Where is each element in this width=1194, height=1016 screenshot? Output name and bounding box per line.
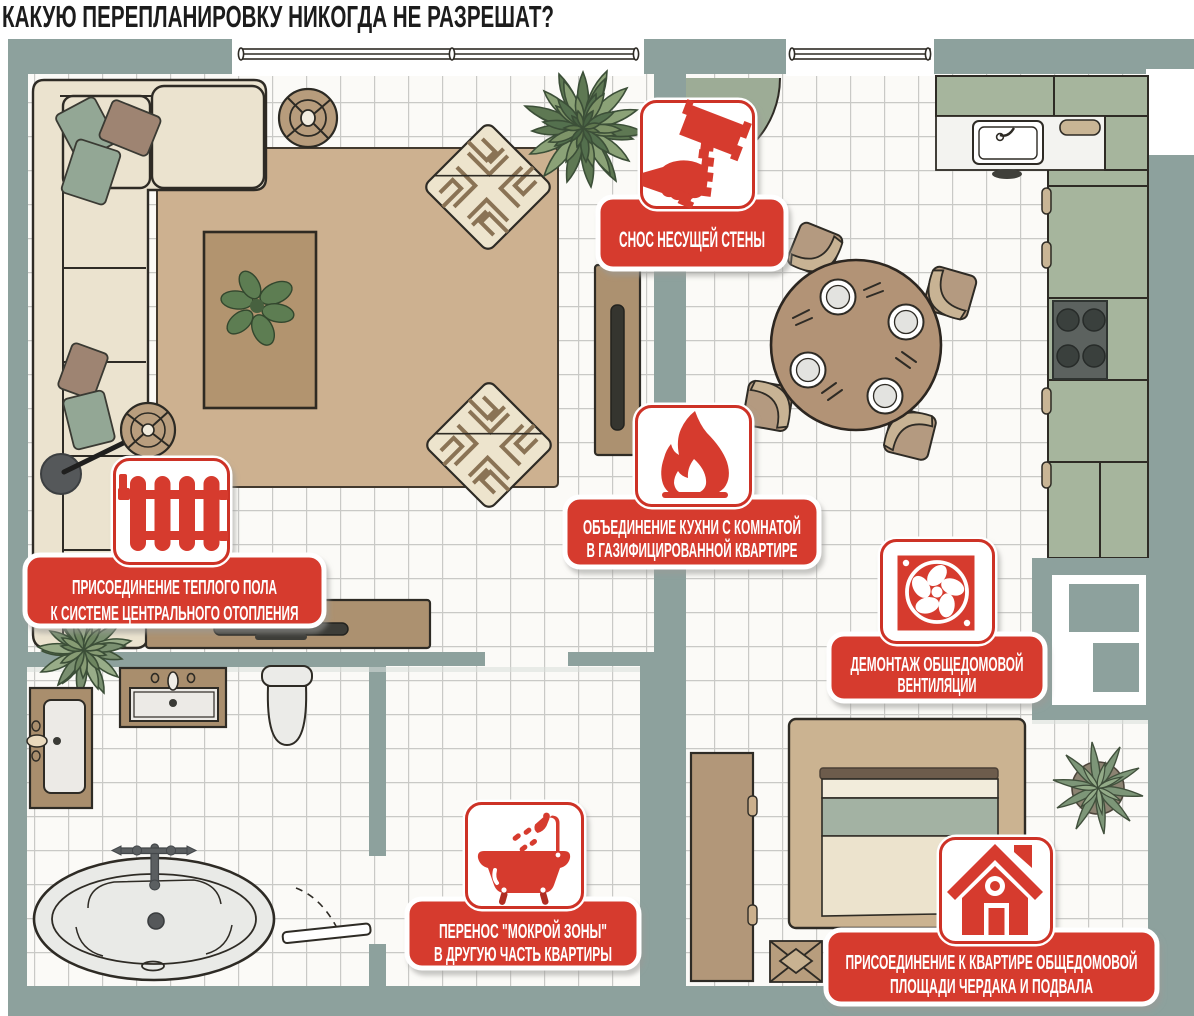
svg-text:ПЕРЕНОС "МОКРОЙ ЗОНЫ": ПЕРЕНОС "МОКРОЙ ЗОНЫ" (439, 919, 607, 943)
svg-text:В ГАЗИФИЦИРОВАННОЙ КВАРТИРЕ: В ГАЗИФИЦИРОВАННОЙ КВАРТИРЕ (587, 538, 798, 562)
svg-text:КАКУЮ ПЕРЕПЛАНИРОВКУ НИКОГДА Н: КАКУЮ ПЕРЕПЛАНИРОВКУ НИКОГДА НЕ РАЗРЕШАТ… (2, 0, 554, 34)
svg-text:К СИСТЕМЕ ЦЕНТРАЛЬНОГО ОТОПЛЕН: К СИСТЕМЕ ЦЕНТРАЛЬНОГО ОТОПЛЕНИЯ (51, 603, 299, 625)
svg-text:ПРИСОЕДИНЕНИЕ ТЕПЛОГО ПОЛА: ПРИСОЕДИНЕНИЕ ТЕПЛОГО ПОЛА (72, 577, 277, 599)
svg-text:ДЕМОНТАЖ ОБЩЕДОМОВОЙ: ДЕМОНТАЖ ОБЩЕДОМОВОЙ (851, 652, 1024, 676)
svg-text:В ДРУГУЮ ЧАСТЬ КВАРТИРЫ: В ДРУГУЮ ЧАСТЬ КВАРТИРЫ (434, 944, 612, 966)
svg-text:ВЕНТИЛЯЦИИ: ВЕНТИЛЯЦИИ (898, 675, 977, 697)
svg-text:ПЛОЩАДИ ЧЕРДАКА И ПОДВАЛА: ПЛОЩАДИ ЧЕРДАКА И ПОДВАЛА (890, 976, 1093, 998)
svg-text:СНОС НЕСУЩЕЙ СТЕНЫ: СНОС НЕСУЩЕЙ СТЕНЫ (619, 227, 765, 252)
svg-text:ОБЪЕДИНЕНИЕ КУХНИ С КОМНАТОЙ: ОБЪЕДИНЕНИЕ КУХНИ С КОМНАТОЙ (583, 515, 801, 539)
svg-text:ПРИСОЕДИНЕНИЕ К КВАРТИРЕ ОБЩЕД: ПРИСОЕДИНЕНИЕ К КВАРТИРЕ ОБЩЕДОМОВОЙ (846, 950, 1138, 974)
